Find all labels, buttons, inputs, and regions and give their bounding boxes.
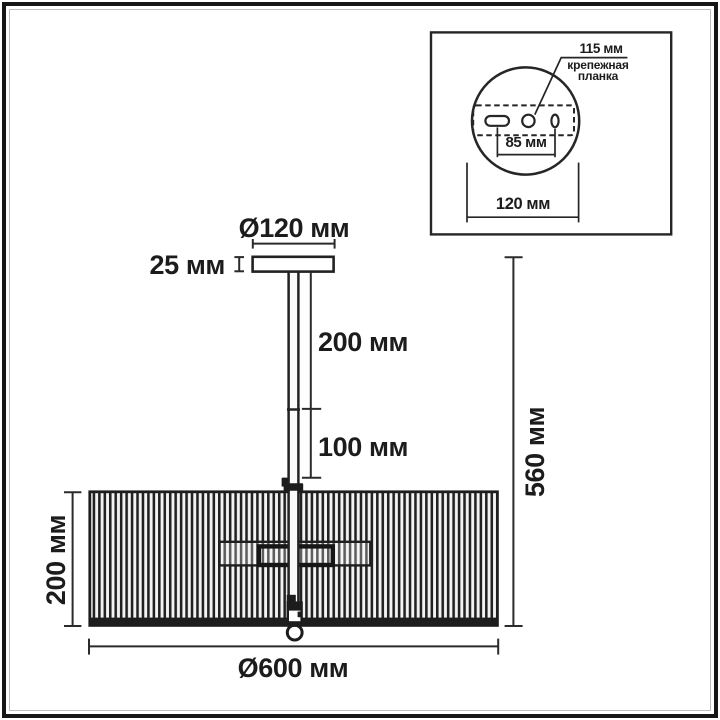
canopy-top-view-circle	[472, 67, 579, 174]
canopy-diameter-label: Ø120 мм	[169, 213, 419, 243]
plate-diameter-label: 120 мм	[463, 195, 583, 213]
lower-rod-length-label: 100 мм	[318, 432, 408, 462]
shade-height-label: 200 мм	[41, 490, 71, 630]
dim-canopy-height	[234, 257, 244, 272]
canopy-height-label: 25 мм	[95, 250, 225, 280]
bracket-caption: крепежная планка	[548, 60, 648, 81]
technical-drawing-canvas	[0, 0, 720, 720]
plate-width-label: 115 мм	[551, 41, 651, 56]
shade-diameter-label: Ø600 мм	[168, 653, 418, 683]
upper-rod-length-label: 200 мм	[318, 327, 408, 357]
bottom-finial	[287, 595, 302, 640]
ceiling-canopy	[253, 257, 334, 272]
hole-spacing-label: 85 мм	[476, 135, 576, 151]
overall-height-label: 560 мм	[520, 382, 550, 522]
lamp-dimension-drawing: Ø120 мм 25 мм 200 мм 100 мм 200 мм 560 м…	[0, 0, 720, 720]
bracket-caption-line2: планка	[548, 71, 648, 82]
